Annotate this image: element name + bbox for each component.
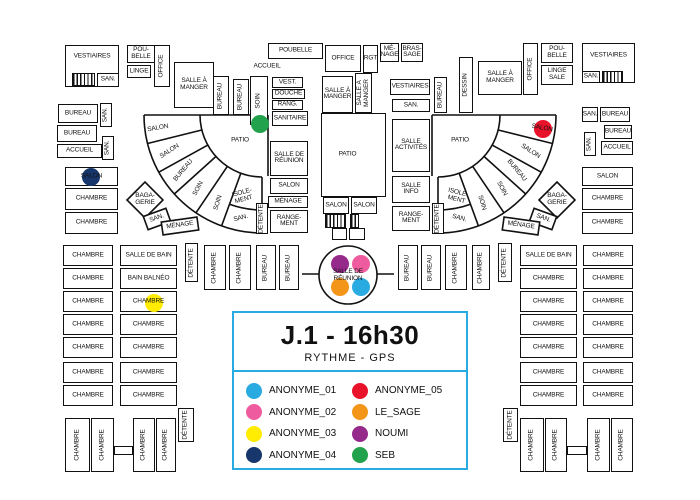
room-label-d-tente: DÉTENTE — [507, 410, 514, 439]
room-label-salon: SALON — [325, 202, 346, 209]
legend-entry-anonyme-02: ANONYME_02 — [246, 402, 352, 424]
room-label-pou-belle: POU- BELLE — [131, 47, 151, 61]
legend-dot-anonyme-04 — [246, 447, 262, 463]
legend-name: ANONYME_01 — [269, 385, 336, 396]
room-label-d-tente: DÉTENTE — [502, 248, 509, 277]
room-label-isole-ment: ISOLE- MENT — [445, 188, 468, 207]
room-label-pou-belle: POU- BELLE — [547, 46, 567, 60]
room-label-chambre: CHAMBRE — [72, 344, 103, 351]
room-label-chambre: CHAMBRE — [529, 429, 536, 460]
room-label-dessin: DESSIN — [463, 73, 470, 96]
room-label-chambre: CHAMBRE — [99, 429, 106, 460]
room-label-range-ment: RANGE- MENT — [399, 212, 423, 226]
room-label-accueil: ACCUEIL — [66, 148, 93, 155]
room-label-chambre: CHAMBRE — [592, 275, 623, 282]
legend-name: LE_SAGE — [375, 407, 421, 418]
legend-entry-le-sage: LE_SAGE — [352, 402, 458, 424]
room-label-salle-manger: SALLE À MANGER — [486, 71, 514, 85]
room-label-bureau: BUREAU — [65, 110, 91, 117]
room-label-chambre: CHAMBRE — [592, 220, 623, 227]
room-label-chambre: CHAMBRE — [133, 369, 164, 376]
legend-name: ANONYME_02 — [269, 407, 336, 418]
legend-dot-anonyme-01 — [246, 383, 262, 399]
legend-dot-anonyme-05 — [352, 383, 368, 399]
room-label-chambre: CHAMBRE — [76, 220, 107, 227]
room-label-bureau: BUREAU — [173, 159, 195, 184]
room-label-baga-gerie: BAGA- GERIE — [135, 193, 154, 207]
legend-name: NOUMI — [375, 428, 408, 439]
room-label-linge-sale: LINGE SALE — [548, 68, 567, 82]
room-label-soin: SOIN — [256, 93, 263, 108]
room-label-san: SAN. — [149, 213, 165, 225]
legend-entry-anonyme-03: ANONYME_03 — [246, 423, 352, 445]
room-label-poubelle: POUBELLE — [279, 48, 312, 55]
room-label-accueil: ACCUEIL — [603, 145, 630, 152]
legend-dot-anonyme-03 — [246, 426, 262, 442]
room-label-san: SAN. — [451, 214, 467, 224]
room-label-chambre: CHAMBRE — [592, 392, 623, 399]
room-label-d-tente: DÉTENTE — [259, 204, 266, 233]
room-label-bureau: BUREAU — [602, 111, 628, 118]
legend-entry-anonyme-01: ANONYME_01 — [246, 380, 352, 402]
room-label-chambre: CHAMBRE — [72, 392, 103, 399]
room-label-chambre: CHAMBRE — [592, 252, 623, 259]
room-label-san: SAN. — [404, 102, 419, 109]
room-label-vestiaires: VESTIAIRES — [74, 54, 111, 61]
room-label-bureau: BUREAU — [263, 254, 270, 280]
room-label-chambre: CHAMBRE — [592, 344, 623, 351]
legend-entry-noumi: NOUMI — [352, 423, 458, 445]
room-label-salle-de-bain: SALLE DE BAIN — [125, 252, 171, 259]
room-label-m-nage: MÉNAGE — [507, 221, 535, 232]
room-label-chambre: CHAMBRE — [163, 429, 170, 460]
room-label-soin: SOIN — [213, 195, 224, 212]
room-label-chambre: CHAMBRE — [133, 298, 164, 305]
room-label-chambre: CHAMBRE — [553, 429, 560, 460]
room-label-chambre: CHAMBRE — [619, 429, 626, 460]
room-label-bureau: BUREAU — [405, 254, 412, 280]
room-label-range-ment: RANGE- MENT — [277, 215, 301, 229]
room-label-san: SAN. — [583, 111, 598, 118]
room-label-vest: VEST. — [279, 79, 296, 86]
room-label-chambre: CHAMBRE — [533, 369, 564, 376]
room-label-chambre: CHAMBRE — [237, 252, 244, 283]
legend-card: J.1 - 16h30 RYTHME - GPS ANONYME_01ANONY… — [232, 311, 468, 470]
room-label-m-nage: MÉNAGE — [166, 221, 194, 232]
room-label-salle-manger: SALLE À MANGER — [357, 79, 371, 107]
room-label-accueil: ACCUEIL — [253, 64, 280, 71]
room-label-bureau: BUREAU — [64, 130, 90, 137]
room-label-chambre: CHAMBRE — [533, 321, 564, 328]
room-label-san: SAN. — [105, 141, 112, 156]
room-label-vestiaires: VESTIAIRES — [590, 53, 627, 60]
floor-plan-canvas: VESTIAIRESSAN.POU- BELLELINGEOFFICESALLE… — [0, 0, 700, 500]
room-label-salle-de-bain: SALLE DE BAIN — [525, 252, 571, 259]
legend-dot-le-sage — [352, 404, 368, 420]
legend-entry-anonyme-05: ANONYME_05 — [352, 380, 458, 402]
legend-name: ANONYME_04 — [269, 450, 336, 461]
room-label-linge: LINGE — [130, 68, 149, 75]
room-label-m-nage: MÉNAGE — [274, 199, 301, 206]
room-label-bureau: BUREAU — [218, 82, 225, 108]
legend-entries: ANONYME_01ANONYME_02ANONYME_03ANONYME_04… — [234, 372, 466, 476]
legend-header: J.1 - 16h30 RYTHME - GPS — [234, 320, 466, 364]
legend-dot-seb — [352, 447, 368, 463]
room-label-bain-baln-o: BAIN BALNÉO — [128, 275, 170, 282]
room-label-d-tente: DÉTENTE — [435, 204, 442, 233]
room-label-chambre: CHAMBRE — [72, 252, 103, 259]
room-label-chambre: CHAMBRE — [595, 429, 602, 460]
room-label-chambre: CHAMBRE — [592, 298, 623, 305]
room-label-salon: SALON — [597, 173, 618, 180]
room-label-baga-gerie: BAGA- GERIE — [547, 193, 566, 207]
legend-title: J.1 - 16h30 — [234, 320, 466, 351]
room-label-chambre: CHAMBRE — [72, 321, 103, 328]
room-label-salon: SALON — [159, 143, 181, 160]
room-label-chambre: CHAMBRE — [533, 298, 564, 305]
room-label-office: OFFICE — [159, 55, 166, 78]
room-label-bras-sage: BRAS- SAGE — [402, 46, 421, 60]
room-label-bureau: BUREAU — [238, 84, 245, 110]
room-label-salon: SALON — [81, 173, 102, 180]
room-label-soin: SOIN — [192, 181, 205, 198]
legend-dot-noumi — [352, 426, 368, 442]
room-label-chambre: CHAMBRE — [212, 252, 219, 283]
room-label-chambre: CHAMBRE — [133, 392, 164, 399]
room-label-soin: SOIN — [494, 181, 507, 198]
room-label-chambre: CHAMBRE — [592, 196, 623, 203]
room-label-chambre: CHAMBRE — [453, 252, 460, 283]
room-label-chambre: CHAMBRE — [533, 392, 564, 399]
room-label-chambre: CHAMBRE — [533, 344, 564, 351]
room-label-bureau: BUREAU — [505, 159, 527, 184]
room-label-douche: DOUCHE — [275, 91, 302, 98]
legend-name: ANONYME_05 — [375, 385, 442, 396]
room-label-office: OFFICE — [527, 58, 534, 81]
room-label-salon: SALON — [278, 183, 299, 190]
room-label-san: SAN. — [101, 77, 116, 84]
room-label-salle-manger: SALLE À MANGER — [324, 88, 352, 102]
room-label-salle-info: SALLE INFO — [401, 183, 421, 197]
room-label-san: SAN. — [535, 213, 551, 225]
room-label-san: SAN. — [233, 214, 249, 224]
room-label-chambre: CHAMBRE — [72, 298, 103, 305]
room-label-salle-de-r-union: SALLE DE RÉUNION — [274, 152, 304, 166]
room-label-salle-manger: SALLE À MANGER — [180, 78, 208, 92]
room-label-san: SAN. — [584, 74, 599, 81]
room-label-salle-activit-s: SALLE ACTIVITÉS — [395, 139, 427, 153]
legend-name: ANONYME_03 — [269, 428, 336, 439]
room-label-san: SAN. — [103, 108, 110, 123]
room-label-salon: SALON — [147, 124, 169, 135]
room-label-isole-ment: ISOLE- MENT — [231, 188, 254, 207]
room-label-san: SAN. — [587, 137, 594, 152]
room-label-chambre: CHAMBRE — [133, 321, 164, 328]
room-label-soin: SOIN — [475, 195, 486, 212]
room-label-d-tente: DÉTENTE — [188, 248, 195, 277]
legend-name: SEB — [375, 450, 395, 461]
room-label-office: OFFICE — [332, 55, 355, 62]
room-label-salon: SALON — [353, 202, 374, 209]
room-label-patio: PATIO — [451, 138, 469, 145]
legend-subtitle: RYTHME - GPS — [234, 352, 466, 364]
room-label-salle-de-r-union: SALLE DE RÉUNION — [333, 269, 363, 283]
room-label-chambre: CHAMBRE — [74, 429, 81, 460]
room-label-chambre: CHAMBRE — [72, 369, 103, 376]
room-label-bureau: BUREAU — [437, 82, 444, 108]
room-label-chambre: CHAMBRE — [478, 252, 485, 283]
room-label-vestiaires: VESTIAIRES — [392, 84, 429, 91]
room-label-chambre: CHAMBRE — [76, 196, 107, 203]
legend-entry-seb: SEB — [352, 445, 458, 467]
room-label-bureau: BUREAU — [605, 129, 631, 136]
room-label-chambre: CHAMBRE — [72, 275, 103, 282]
room-label-bureau: BUREAU — [286, 254, 293, 280]
legend-entry-anonyme-04: ANONYME_04 — [246, 445, 352, 467]
legend-dot-anonyme-02 — [246, 404, 262, 420]
room-label-salon: SALON — [519, 143, 541, 160]
room-label-m-nage: MÉ- NAGE — [381, 46, 399, 60]
room-label-salon: SALON — [531, 124, 553, 135]
room-label-d-tente: DÉTENTE — [183, 410, 190, 439]
room-label-rgt: RGT — [364, 56, 377, 63]
room-label-chambre: CHAMBRE — [533, 275, 564, 282]
room-label-chambre: CHAMBRE — [592, 321, 623, 328]
room-label-rang: RANG. — [278, 102, 298, 109]
room-label-bureau: BUREAU — [428, 254, 435, 280]
room-label-sanitaire: SANITAIRE — [274, 115, 306, 122]
room-label-patio: PATIO — [339, 152, 357, 159]
room-label-chambre: CHAMBRE — [592, 369, 623, 376]
room-label-chambre: CHAMBRE — [133, 344, 164, 351]
room-label-chambre: CHAMBRE — [141, 429, 148, 460]
room-label-patio: PATIO — [231, 138, 249, 145]
